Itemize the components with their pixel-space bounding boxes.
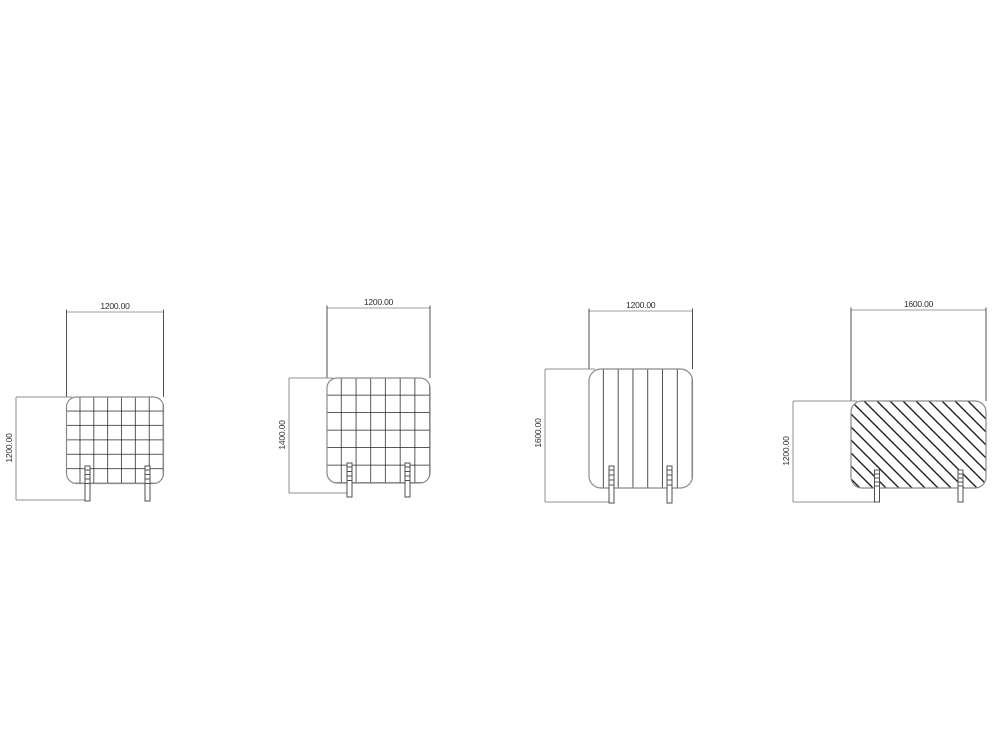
drawing-3-right-foot [667,466,672,503]
width-dimension-label: 1600.00 [904,299,934,309]
height-dimension-label: 1600.00 [533,418,543,448]
drawing-4-diagonal-hatch-panel: 1600.00 1200.00 [781,299,986,502]
drawing-4-left-foot [875,470,880,502]
drawing-canvas: 1200.00 1200.00 [0,0,1000,755]
coarse-grid-hatch [327,378,430,483]
drawing-2-right-foot [405,463,410,497]
drawing-3-left-foot [609,466,614,503]
cad-drawing-sheet: 1200.00 1200.00 [0,0,1000,755]
drawing-4-right-foot [958,470,963,502]
diagonal-hatch [851,401,986,488]
vertical-slats-hatch [589,369,693,488]
drawing-3-width-dimension: 1200.00 [589,300,693,369]
drawing-1-right-foot [145,466,150,501]
width-dimension-label: 1200.00 [364,297,394,307]
height-dimension-label: 1400.00 [277,420,287,450]
drawing-1-left-foot [85,466,90,501]
drawing-2-width-dimension: 1200.00 [327,297,430,378]
drawing-2-coarse-grid-panel: 1200.00 1400.00 [277,297,430,497]
drawing-1-width-dimension: 1200.00 [67,301,164,397]
height-dimension-label: 1200.00 [4,433,14,463]
drawing-2-left-foot [347,463,352,497]
width-dimension-label: 1200.00 [626,300,656,310]
drawing-4-width-dimension: 1600.00 [851,299,986,401]
drawing-1-fine-grid-panel: 1200.00 1200.00 [4,301,164,501]
drawing-3-vertical-slats-panel: 1200.00 1600.00 [533,300,693,503]
height-dimension-label: 1200.00 [781,436,791,466]
width-dimension-label: 1200.00 [100,301,130,311]
